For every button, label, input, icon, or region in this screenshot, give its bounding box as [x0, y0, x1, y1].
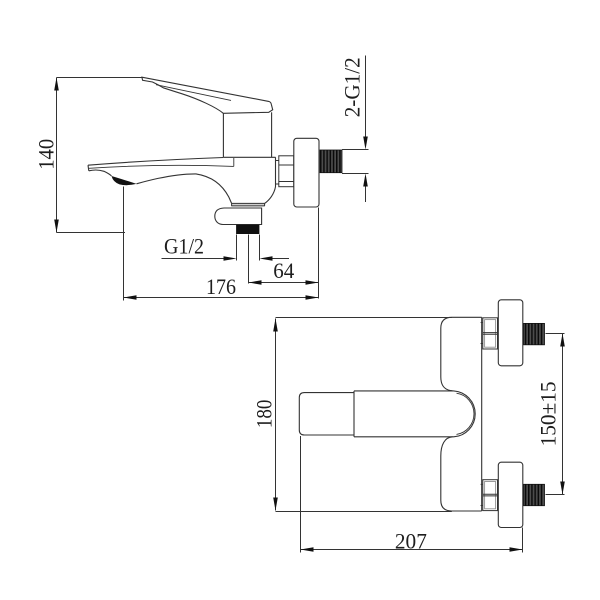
svg-text:140: 140: [34, 139, 59, 170]
svg-text:64: 64: [273, 258, 294, 283]
svg-text:180: 180: [251, 400, 276, 429]
svg-text:176: 176: [206, 274, 236, 299]
svg-text:150±15: 150±15: [536, 381, 561, 446]
svg-text:G1/2: G1/2: [164, 234, 204, 259]
svg-text:2-G1/2: 2-G1/2: [340, 57, 365, 117]
svg-text:207: 207: [395, 529, 427, 554]
